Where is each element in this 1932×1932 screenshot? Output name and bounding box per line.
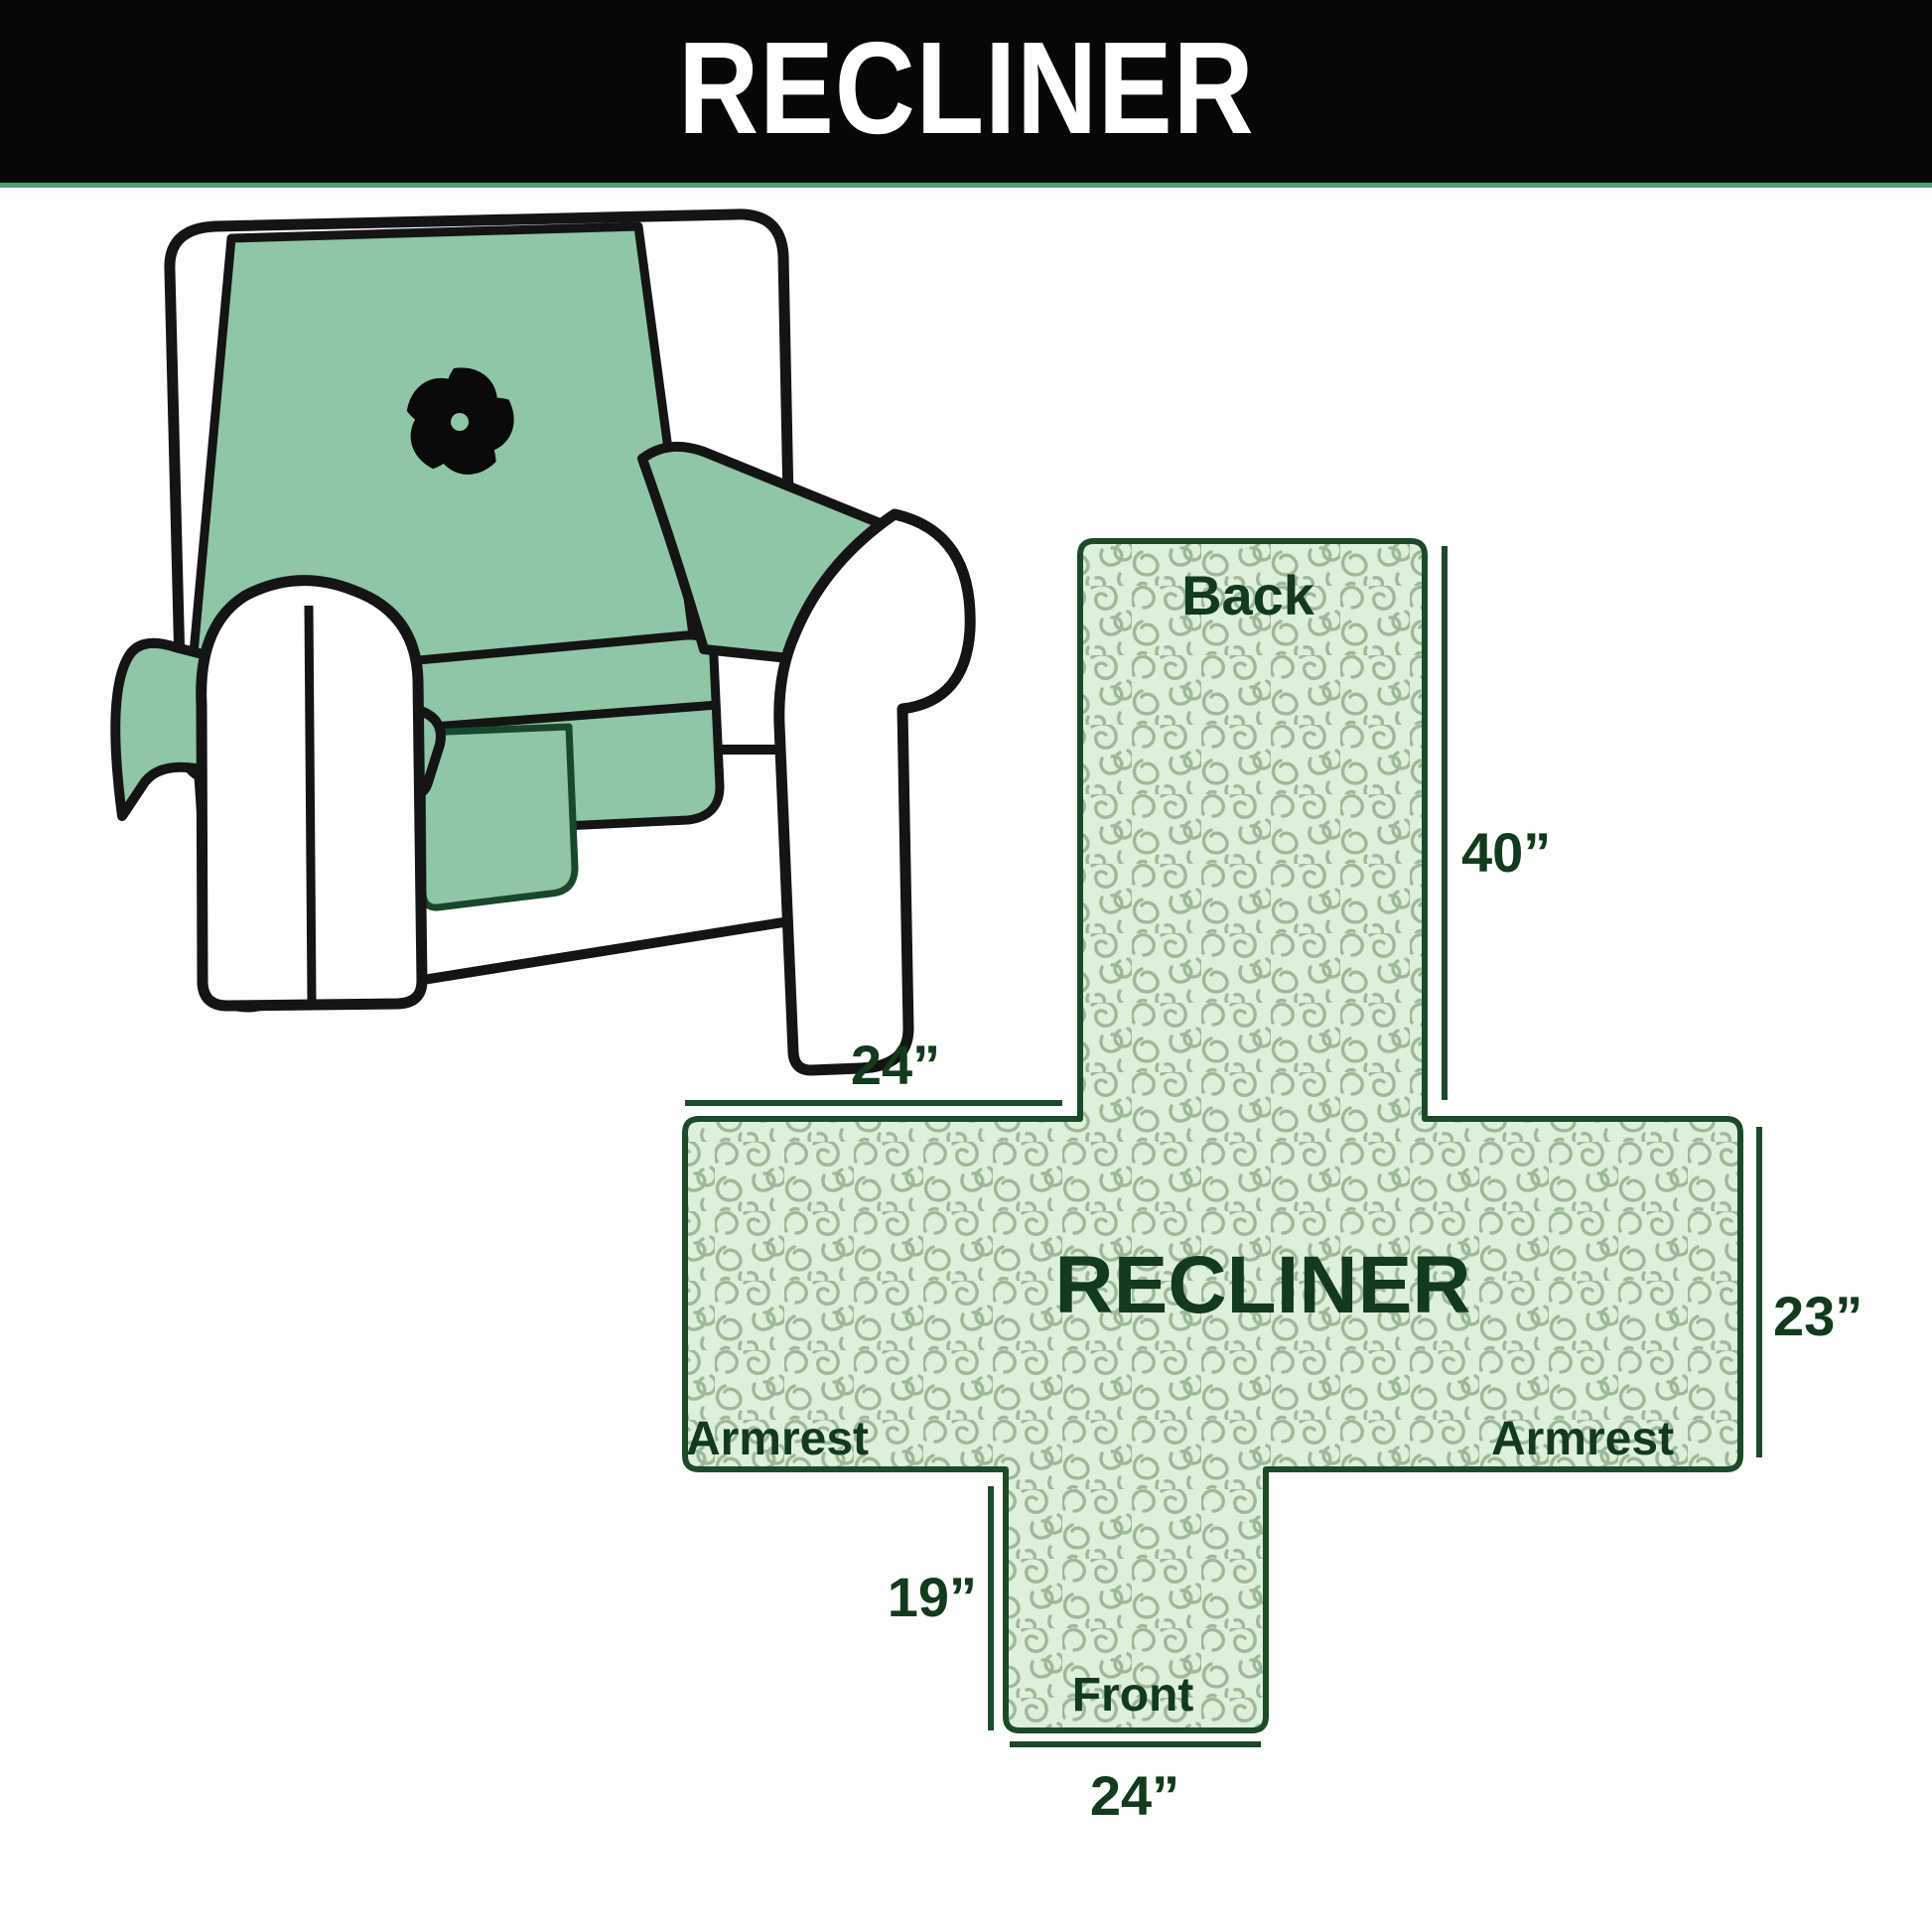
banner-divider — [0, 183, 1932, 188]
chair-front-skirt-cover — [422, 727, 575, 907]
dim-label-front-width: 24” — [1090, 1764, 1179, 1827]
cover-cross-shape — [685, 541, 1740, 1730]
chair-left-arm-contour — [309, 606, 312, 1001]
dim-label-back-height: 40” — [1461, 821, 1551, 884]
front-panel-label: Front — [1072, 1669, 1194, 1722]
back-panel-label: Back — [1181, 564, 1315, 626]
cover-layout-diagram: Back RECLINER Armrest Armrest Front 24” … — [645, 516, 1896, 1827]
center-recliner-label: RECLINER — [1054, 1240, 1470, 1330]
dim-label-side-height: 23” — [1773, 1285, 1863, 1347]
page-title: RECLINER — [678, 23, 1254, 154]
title-banner: RECLINER — [0, 0, 1932, 183]
armrest-right-label: Armrest — [1491, 1413, 1674, 1465]
infographic-page: RECLINER — [0, 0, 1932, 1932]
dim-label-front-drop-height: 19” — [888, 1566, 977, 1628]
dim-label-armrest-top-width: 24” — [851, 1034, 940, 1096]
armrest-left-label: Armrest — [686, 1413, 869, 1465]
